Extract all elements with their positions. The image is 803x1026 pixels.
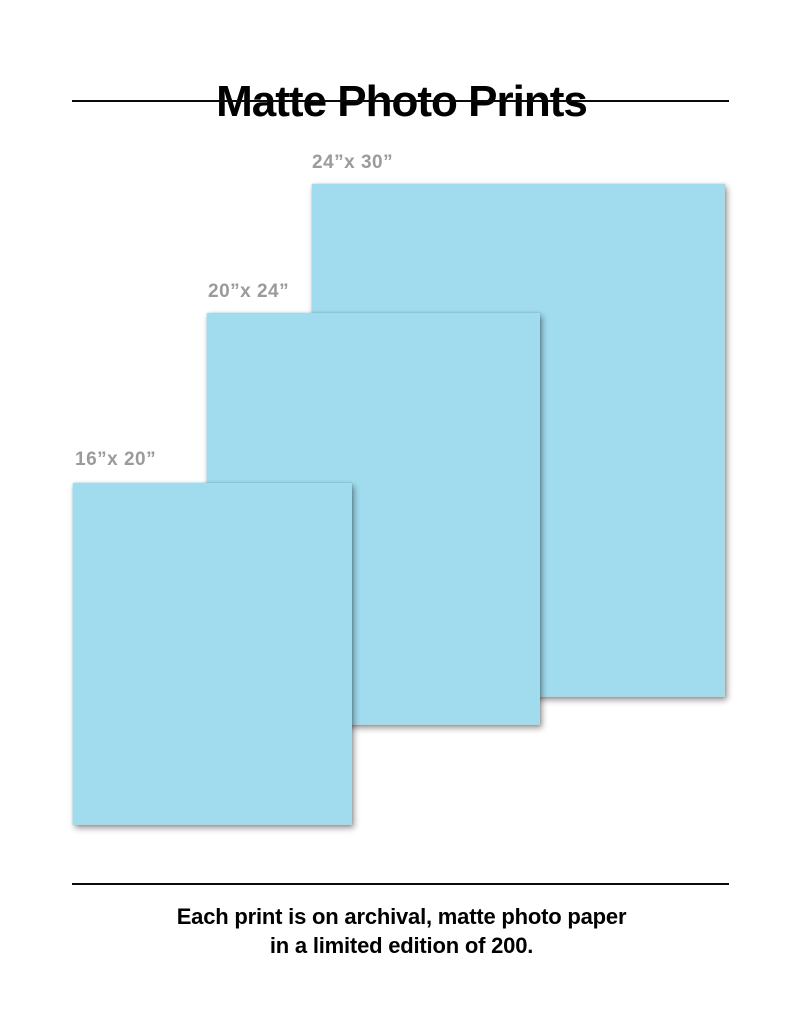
footer-caption: Each print is on archival, matte photo p…: [0, 902, 803, 960]
matte-photo-prints-infographic: { "page": { "title": "Matte Photo Prints…: [0, 0, 803, 1026]
footer-caption-line1: Each print is on archival, matte photo p…: [0, 902, 803, 931]
footer-divider: [72, 883, 729, 885]
title-divider: [72, 100, 729, 102]
print-size-label-16x20: 16”x 20”: [75, 449, 156, 471]
footer-caption-line2: in a limited edition of 200.: [0, 931, 803, 960]
print-size-label-20x24: 20”x 24”: [208, 281, 289, 303]
page-title: Matte Photo Prints: [0, 77, 803, 127]
print-size-label-24x30: 24”x 30”: [312, 152, 393, 174]
print-rect-16x20: [73, 483, 352, 825]
